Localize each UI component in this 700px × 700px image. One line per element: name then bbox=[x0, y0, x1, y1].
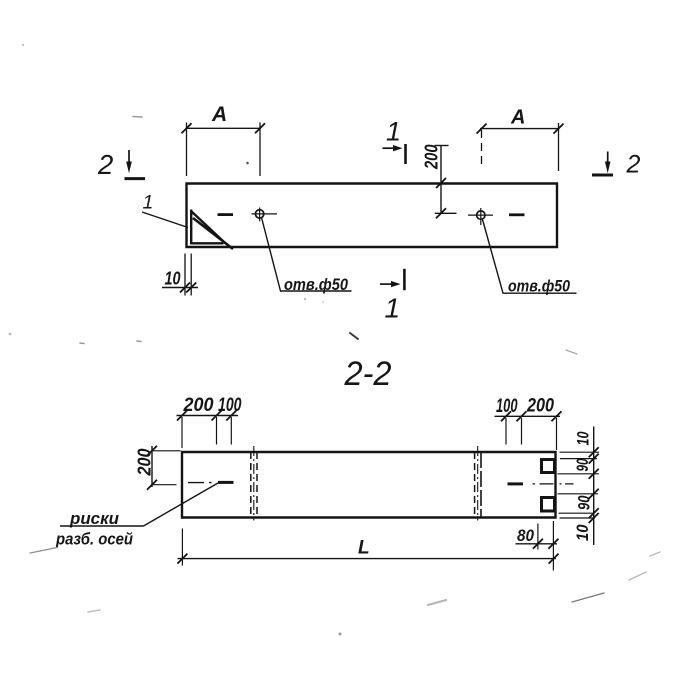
svg-text:отв.ф50: отв.ф50 bbox=[508, 277, 570, 296]
svg-text:10: 10 bbox=[575, 431, 593, 446]
svg-text:2-2: 2-2 bbox=[344, 355, 392, 393]
svg-text:A: A bbox=[510, 107, 525, 129]
svg-text:80: 80 bbox=[517, 527, 535, 545]
svg-text:10: 10 bbox=[165, 268, 182, 289]
svg-text:1: 1 bbox=[143, 191, 154, 213]
svg-text:100: 100 bbox=[218, 395, 242, 416]
svg-text:90: 90 bbox=[576, 495, 594, 510]
svg-text:200: 200 bbox=[422, 145, 442, 170]
svg-text:10: 10 bbox=[574, 524, 592, 541]
svg-text:2: 2 bbox=[97, 149, 113, 180]
svg-text:200: 200 bbox=[526, 396, 554, 417]
svg-text:риски: риски bbox=[69, 509, 120, 528]
svg-text:2: 2 bbox=[626, 151, 641, 179]
svg-text:90: 90 bbox=[574, 458, 592, 472]
svg-text:отв.ф50: отв.ф50 bbox=[284, 275, 348, 294]
svg-text:100: 100 bbox=[496, 396, 518, 417]
svg-text:разб. осей: разб. осей bbox=[55, 530, 133, 549]
svg-text:1: 1 bbox=[385, 293, 401, 324]
svg-text:1: 1 bbox=[386, 117, 401, 147]
svg-text:200: 200 bbox=[135, 449, 155, 477]
svg-text:200: 200 bbox=[183, 395, 214, 416]
svg-text:A: A bbox=[211, 103, 227, 126]
svg-text:L: L bbox=[358, 538, 370, 559]
